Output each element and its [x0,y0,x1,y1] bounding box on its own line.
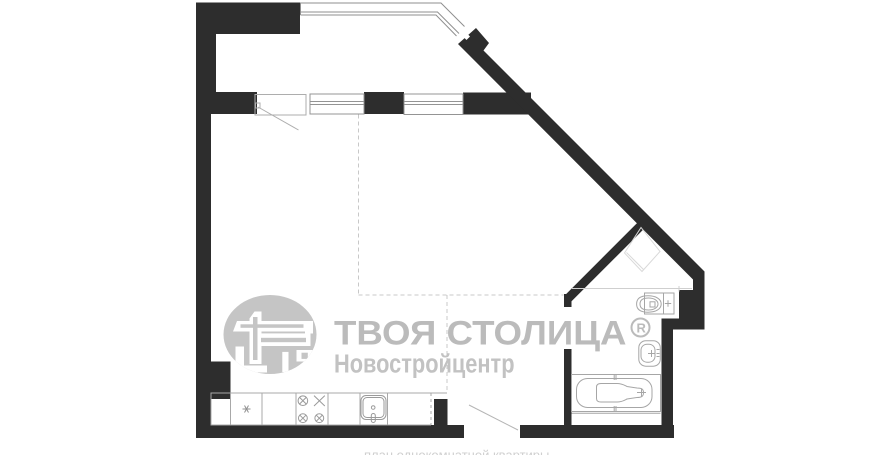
svg-text:ТВОЯ СТОЛИЦА: ТВОЯ СТОЛИЦА [334,314,627,352]
svg-text:Новостройцентр: Новостройцентр [334,351,515,379]
svg-text:план однокомнатной квартиры: план однокомнатной квартиры [364,448,549,455]
svg-text:R: R [637,321,647,336]
